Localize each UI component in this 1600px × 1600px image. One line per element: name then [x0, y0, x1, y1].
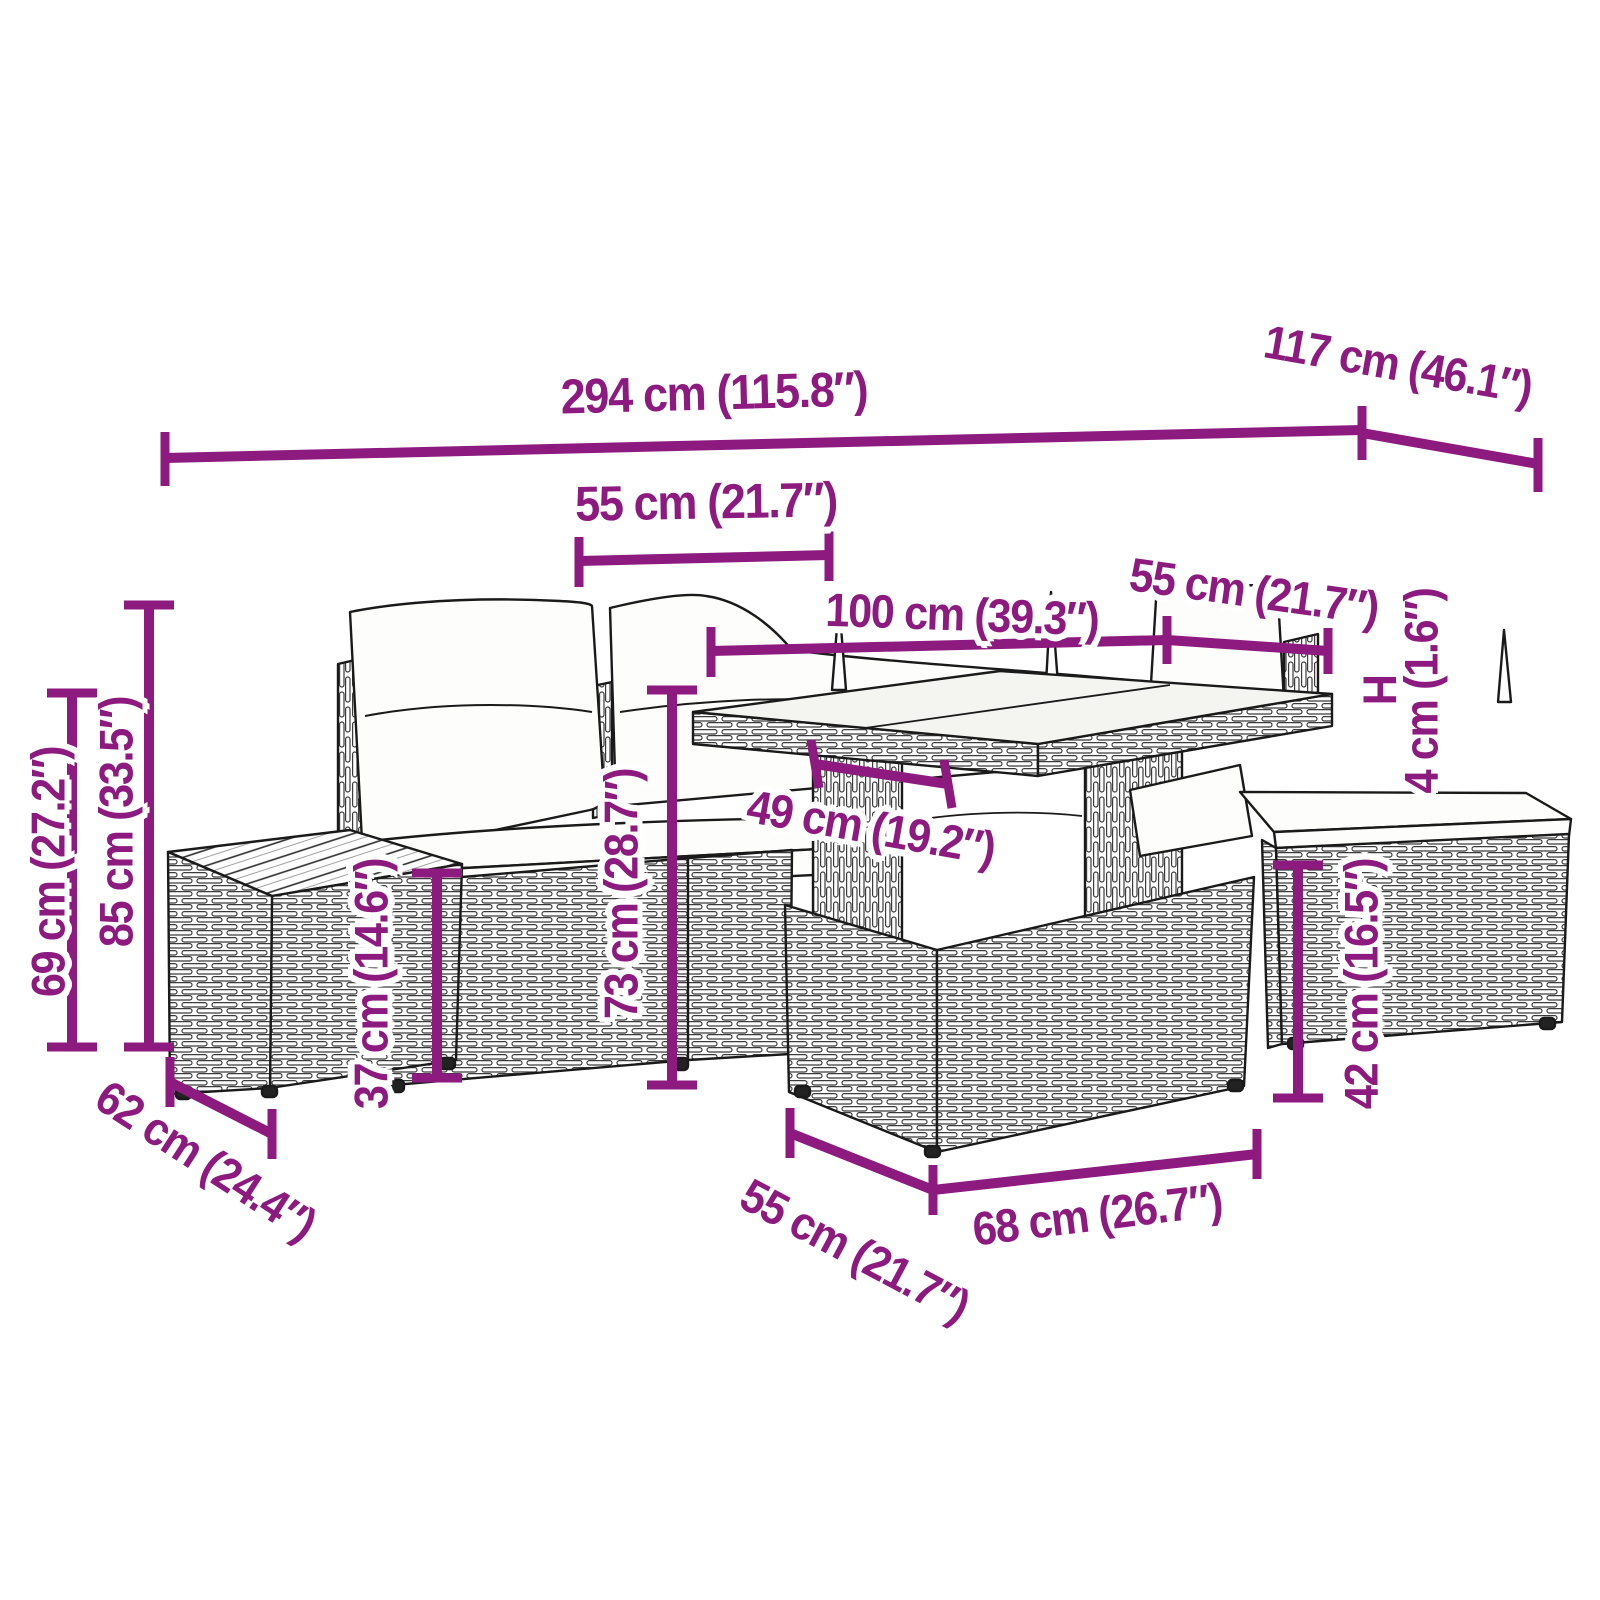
table-base-left-face [785, 905, 937, 1152]
back-pillow-left [350, 599, 604, 854]
dim-55-top-line [579, 555, 829, 561]
dim-85-label: 85 cm (33.5″) [93, 697, 140, 947]
dim-37-label: 37 cm (14.6″) [348, 859, 395, 1109]
dim-42-label: 42 cm (16.5″) [1338, 859, 1385, 1109]
table-base-right-face [937, 877, 1254, 1152]
dim-69-label: 69 cm (27.2″) [25, 747, 72, 997]
pillow-tip-3 [1498, 630, 1511, 702]
table-leg [925, 1146, 940, 1157]
dim-55-top-label: 55 cm (21.7″) [575, 476, 838, 530]
dim-100-label: 100 cm (39.3″) [825, 586, 1099, 642]
table-leg [795, 1086, 810, 1097]
left-ottoman-leg [262, 1086, 277, 1097]
dim-294-line [165, 430, 1362, 458]
right-ottoman-leg [1540, 1018, 1555, 1029]
dim-73-label: 73 cm (28.7″) [598, 769, 645, 1019]
dim-4-label: 4 cm (1.6″) [1398, 588, 1445, 793]
left-ottoman-side [168, 852, 272, 1094]
table-leg [1228, 1080, 1243, 1091]
dim-117-line [1362, 433, 1538, 464]
dim-294-label: 294 cm (115.8″) [560, 365, 868, 422]
dimension-diagram: 294 cm (115.8″) 117 cm (46.1″) 55 cm (21… [0, 0, 1600, 1600]
left-ottoman-leg [440, 1058, 455, 1069]
